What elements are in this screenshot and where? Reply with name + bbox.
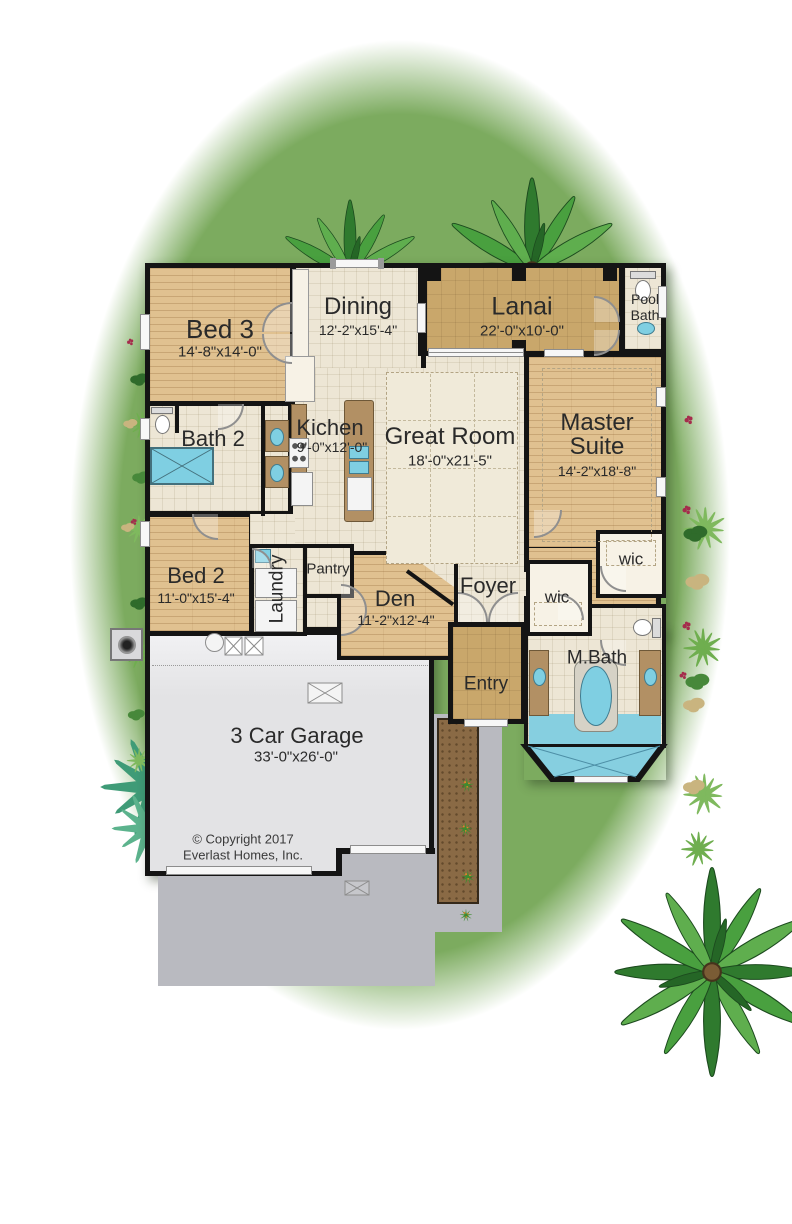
garage-slab-line [152, 665, 428, 666]
lanai-post [427, 267, 441, 281]
room-label-master-2: Suite [570, 435, 625, 459]
room-label-mbath: M.Bath [567, 649, 627, 668]
sliding-door-track [428, 352, 524, 353]
planter-ferns [437, 718, 479, 904]
lanai-post [603, 267, 617, 281]
room-label-bed2: Bed 2 [167, 565, 225, 587]
room-label-laundry: Laundry [268, 555, 287, 624]
foliage-border-left [102, 246, 150, 670]
room-dims-bed2: 11'-0"x15'-4" [157, 591, 234, 605]
copyright-line1: © Copyright 2017 [192, 833, 293, 846]
bathtub-icon [580, 666, 612, 726]
palm-tree-icon [338, 76, 532, 270]
room-dims-lanai: 22'-0"x10'-0" [480, 324, 564, 339]
water-heater-icon [205, 633, 224, 652]
window-dining-lanai [417, 303, 426, 333]
wall-dining-lanai [418, 333, 425, 356]
garage-door-right [350, 845, 426, 854]
wall-bath2-toilet [175, 401, 179, 433]
refrigerator-icon [291, 472, 313, 506]
window-bed2 [140, 521, 150, 547]
room-label-pool-bath-1: Pool [631, 292, 659, 306]
window-cap [378, 258, 384, 269]
sink-icon [637, 322, 655, 335]
hallway-patch [250, 514, 295, 546]
copyright-line2: Everlast Homes, Inc. [183, 849, 303, 862]
room-label-bath2: Bath 2 [181, 428, 245, 450]
window-master-2 [656, 477, 666, 497]
room-label-master-1: Master [560, 411, 633, 435]
room-label-wic-right: wic [619, 551, 644, 568]
dishwasher-icon [347, 477, 372, 511]
sink-icon [533, 668, 546, 686]
window-bed3 [140, 314, 150, 350]
sink-icon [270, 464, 284, 482]
entry-opening [464, 719, 508, 727]
sink-icon [270, 428, 284, 446]
room-label-foyer: Foyer [460, 575, 516, 597]
wall-hall-left [524, 548, 529, 572]
window-dining-top [334, 259, 380, 268]
room-label-lanai: Lanai [491, 295, 552, 320]
room-dims-kitchen: 9'-0"x12'-0" [297, 440, 368, 454]
palm-tree-icon [194, 118, 350, 274]
room-label-entry: Entry [464, 675, 508, 694]
room-dims-dining: 12'-2"x15'-4" [319, 323, 397, 337]
window-lanai-south [544, 349, 584, 357]
carpet-grid [388, 516, 516, 517]
window-cap [330, 258, 336, 269]
wall-dining-lanai [418, 263, 425, 303]
attic-access-icon [307, 682, 343, 704]
island-sink-icon [349, 461, 369, 474]
floor-plan-canvas: Bed 3 14'-8"x14'-0" Dining 12'-2"x15'-4"… [0, 0, 792, 1224]
shower-icon [150, 447, 214, 485]
room-dims-bed3: 14'-8"x14'-0" [178, 345, 262, 360]
room-label-wic-left: wic [545, 589, 570, 606]
utility-boxes-icon [224, 636, 264, 656]
room-label-den: Den [375, 588, 415, 610]
room-label-pool-bath-2: Bath [631, 308, 660, 322]
toilet-icon [155, 415, 170, 434]
window-bath2 [140, 418, 150, 440]
wall-bath2-vanity [261, 401, 265, 516]
garage-door-left [166, 866, 312, 875]
room-dims-garage: 33'-0"x26'-0" [254, 750, 338, 765]
lanai-post [512, 267, 526, 281]
equipment-fan-icon [118, 636, 136, 654]
toilet-icon [633, 619, 652, 636]
room-label-bed3: Bed 3 [186, 316, 254, 342]
sink-icon [644, 668, 657, 686]
window-bay [574, 776, 628, 783]
room-label-dining: Dining [324, 295, 392, 319]
room-label-great-room: Great Room [385, 425, 516, 449]
room-label-garage: 3 Car Garage [230, 725, 363, 747]
toilet-icon [151, 407, 173, 414]
wall-hall-left [524, 596, 529, 636]
room-label-pantry: Pantry [306, 562, 349, 577]
toilet-icon [630, 271, 656, 279]
toilet-icon [652, 618, 661, 638]
column-pad-icon [344, 880, 370, 896]
room-label-kitchen: Kichen [296, 417, 363, 439]
carpet-grid [388, 420, 516, 421]
window-master-1 [656, 387, 666, 407]
room-dims-great-room: 18'-0"x21'-5" [408, 454, 492, 469]
agave-plant-icon [48, 664, 158, 814]
room-dims-master: 14'-2"x18'-8" [558, 464, 636, 478]
room-dims-den: 11'-2"x12'-4" [357, 613, 434, 627]
